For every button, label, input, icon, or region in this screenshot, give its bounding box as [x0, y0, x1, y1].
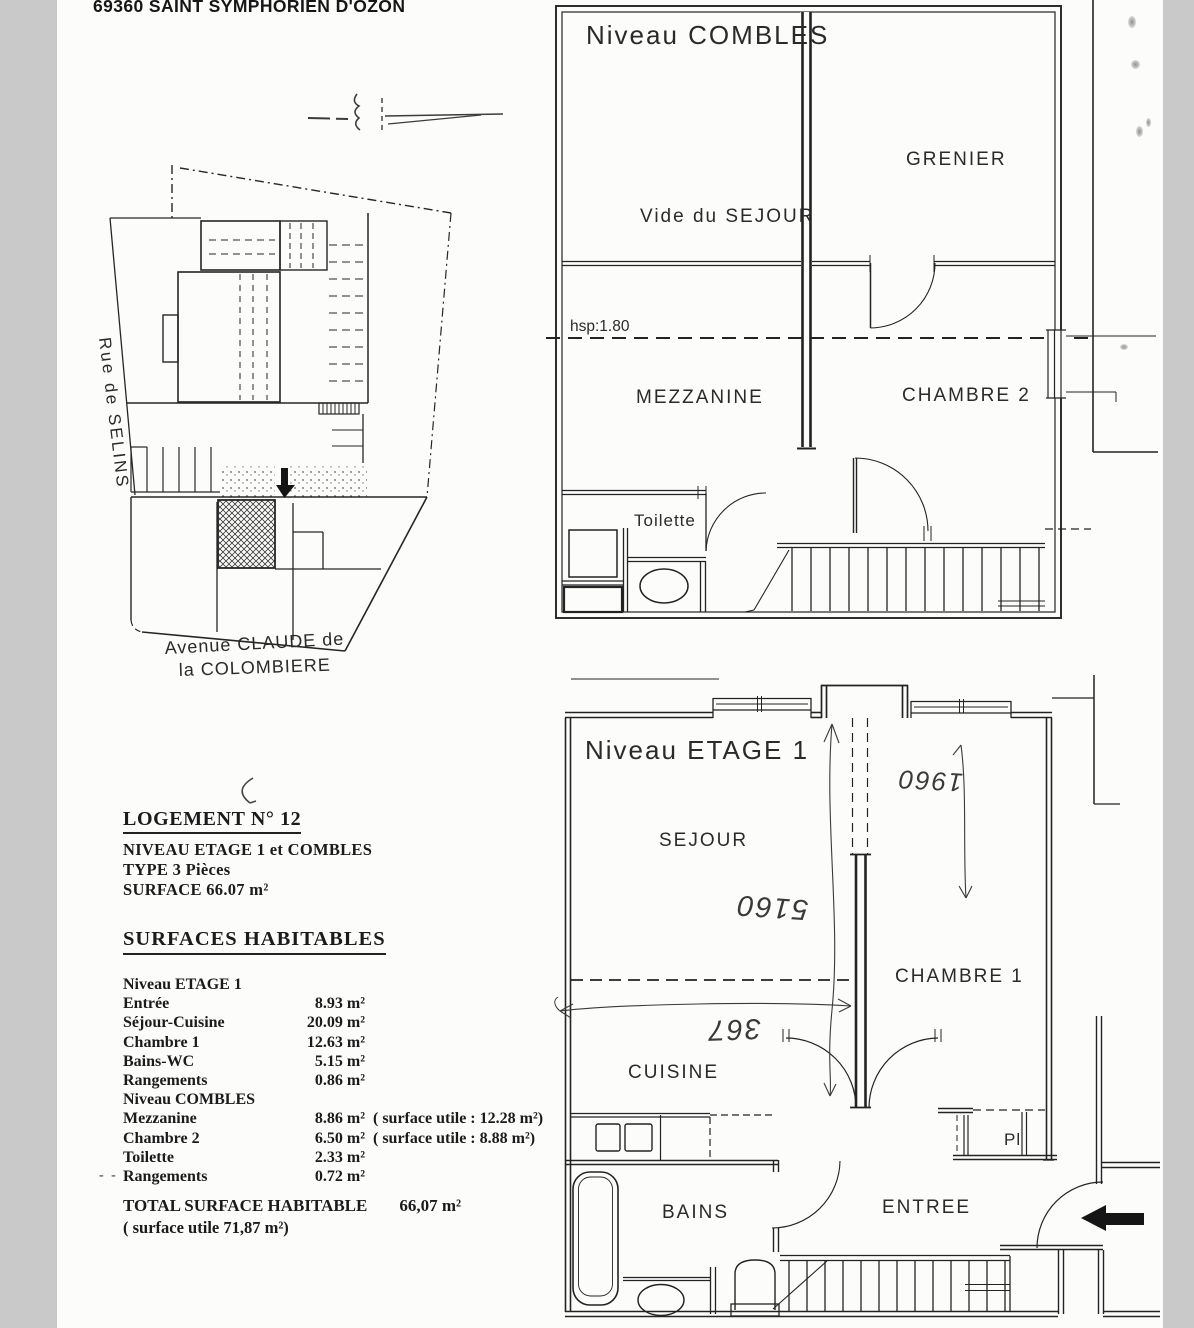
street-label-rue-selins: Rue de SELINS — [95, 336, 132, 490]
scan-gray-band-right — [1163, 0, 1194, 1328]
table-row: Rangements0.72 m² — [123, 1168, 623, 1187]
avenue-label-line2: la COLOMBIERE — [178, 655, 331, 680]
avenue-label-line1: Avenue CLAUDE de — [164, 629, 345, 658]
room-label-sejour: SEJOUR — [659, 830, 748, 851]
hsp-label: hsp:1.80 — [570, 318, 630, 335]
hand-dash-marks: - - — [99, 1168, 118, 1184]
site-plan: Rue de SELINS Avenue CLAUDE de la COLOMB… — [85, 150, 485, 710]
north-arrow-lines — [308, 94, 503, 130]
etage1-stairs — [773, 1256, 1010, 1313]
total-row: TOTAL SURFACE HABITABLE 66,07 m² — [123, 1196, 461, 1216]
room-label-mezzanine: MEZZANINE — [636, 387, 764, 408]
table-row: Toilette2.33 m² — [123, 1149, 623, 1168]
room-label-entree: ENTREE — [882, 1197, 971, 1218]
table-row: Chambre 112.63 m² — [123, 1034, 623, 1053]
scan-speckle — [1120, 344, 1128, 350]
table-row: Chambre 26.50 m²( surface utile : 8.88 m… — [123, 1130, 623, 1149]
table-row: Bains-WC5.15 m² — [123, 1053, 623, 1072]
logement-title: LOGEMENT N° 12 — [123, 808, 301, 834]
room-label-bains: BAINS — [662, 1202, 729, 1223]
niveau-line: NIVEAU ETAGE 1 et COMBLES — [123, 840, 372, 860]
site-lower-block — [217, 500, 381, 640]
table-row: Rangements0.86 m² — [123, 1072, 623, 1091]
room-label-vide-du-sejour: Vide du SEJOUR — [640, 206, 814, 227]
hand-dim-5160: 5160 — [735, 889, 810, 926]
scan-gray-band-left — [0, 0, 57, 1328]
etage1-central-wall — [850, 718, 871, 1108]
info-block: LOGEMENT N° 12 NIVEAU ETAGE 1 et COMBLES… — [123, 776, 623, 1276]
scan-speckle — [1131, 60, 1140, 69]
surface-line: SURFACE 66.07 m² — [123, 880, 269, 900]
scan-speckle — [1136, 126, 1143, 137]
combles-plan: Niveau COMBLES Vide du SEJOUR GRENIER ME… — [540, 0, 1162, 650]
etage1-title: Niveau ETAGE 1 — [585, 735, 809, 765]
room-label-toilette: Toilette — [634, 511, 696, 530]
total-label: TOTAL SURFACE HABITABLE — [123, 1196, 367, 1216]
hand-dim-1960: 1960 — [896, 764, 963, 797]
table-row: Niveau ETAGE 1 — [123, 976, 623, 995]
site-court-and-parking — [131, 403, 427, 497]
hand-squiggle-icon — [231, 776, 261, 806]
etage1-entrance — [1000, 1016, 1160, 1314]
table-row: Entrée8.93 m² — [123, 995, 623, 1014]
type-line: TYPE 3 Pièces — [123, 860, 230, 880]
scan-speckle — [1128, 16, 1136, 28]
surfaces-habitables-title: SURFACES HABITABLES — [123, 928, 386, 955]
combles-toilette-walls — [562, 486, 766, 612]
combles-stairs — [745, 458, 1091, 612]
room-label-chambre2: CHAMBRE 2 — [902, 385, 1031, 406]
combles-right-window — [1046, 330, 1156, 402]
entrance-arrow-icon — [1081, 1205, 1144, 1231]
site-buildings — [127, 213, 368, 403]
combles-title: Niveau COMBLES — [586, 20, 829, 50]
etage1-closet — [938, 1109, 1057, 1160]
table-row: Niveau COMBLES — [123, 1091, 623, 1110]
room-label-cuisine: CUISINE — [628, 1062, 719, 1083]
total-note: ( surface utile 71,87 m²) — [123, 1218, 289, 1238]
table-row: Séjour-Cuisine20.09 m² — [123, 1014, 623, 1033]
surfaces-table: - - Niveau ETAGE 1 Entrée8.93 m² Séjour-… — [123, 976, 623, 1187]
scanned-floorplan-page: 69360 SAINT SYMPHORIEN D'OZON — [0, 0, 1194, 1328]
total-value: 66,07 m² — [399, 1196, 461, 1216]
etage1-plan: Niveau ETAGE 1 SEJOUR CHAMBRE 1 CUISINE … — [540, 660, 1162, 1328]
toilet-fixture — [640, 569, 688, 603]
scan-speckle — [1146, 118, 1151, 127]
hand-dim-367: 367 — [706, 1012, 761, 1046]
etage1-windows — [713, 685, 1011, 718]
room-label-chambre1: CHAMBRE 1 — [895, 966, 1024, 987]
header-address: 69360 SAINT SYMPHORIEN D'OZON — [93, 0, 405, 17]
table-row: Mezzanine8.86 m²( surface utile : 12.28 … — [123, 1110, 623, 1129]
room-label-placard: Pl — [1004, 1130, 1021, 1149]
room-label-grenier: GRENIER — [906, 149, 1007, 170]
combles-central-wall — [797, 12, 816, 449]
